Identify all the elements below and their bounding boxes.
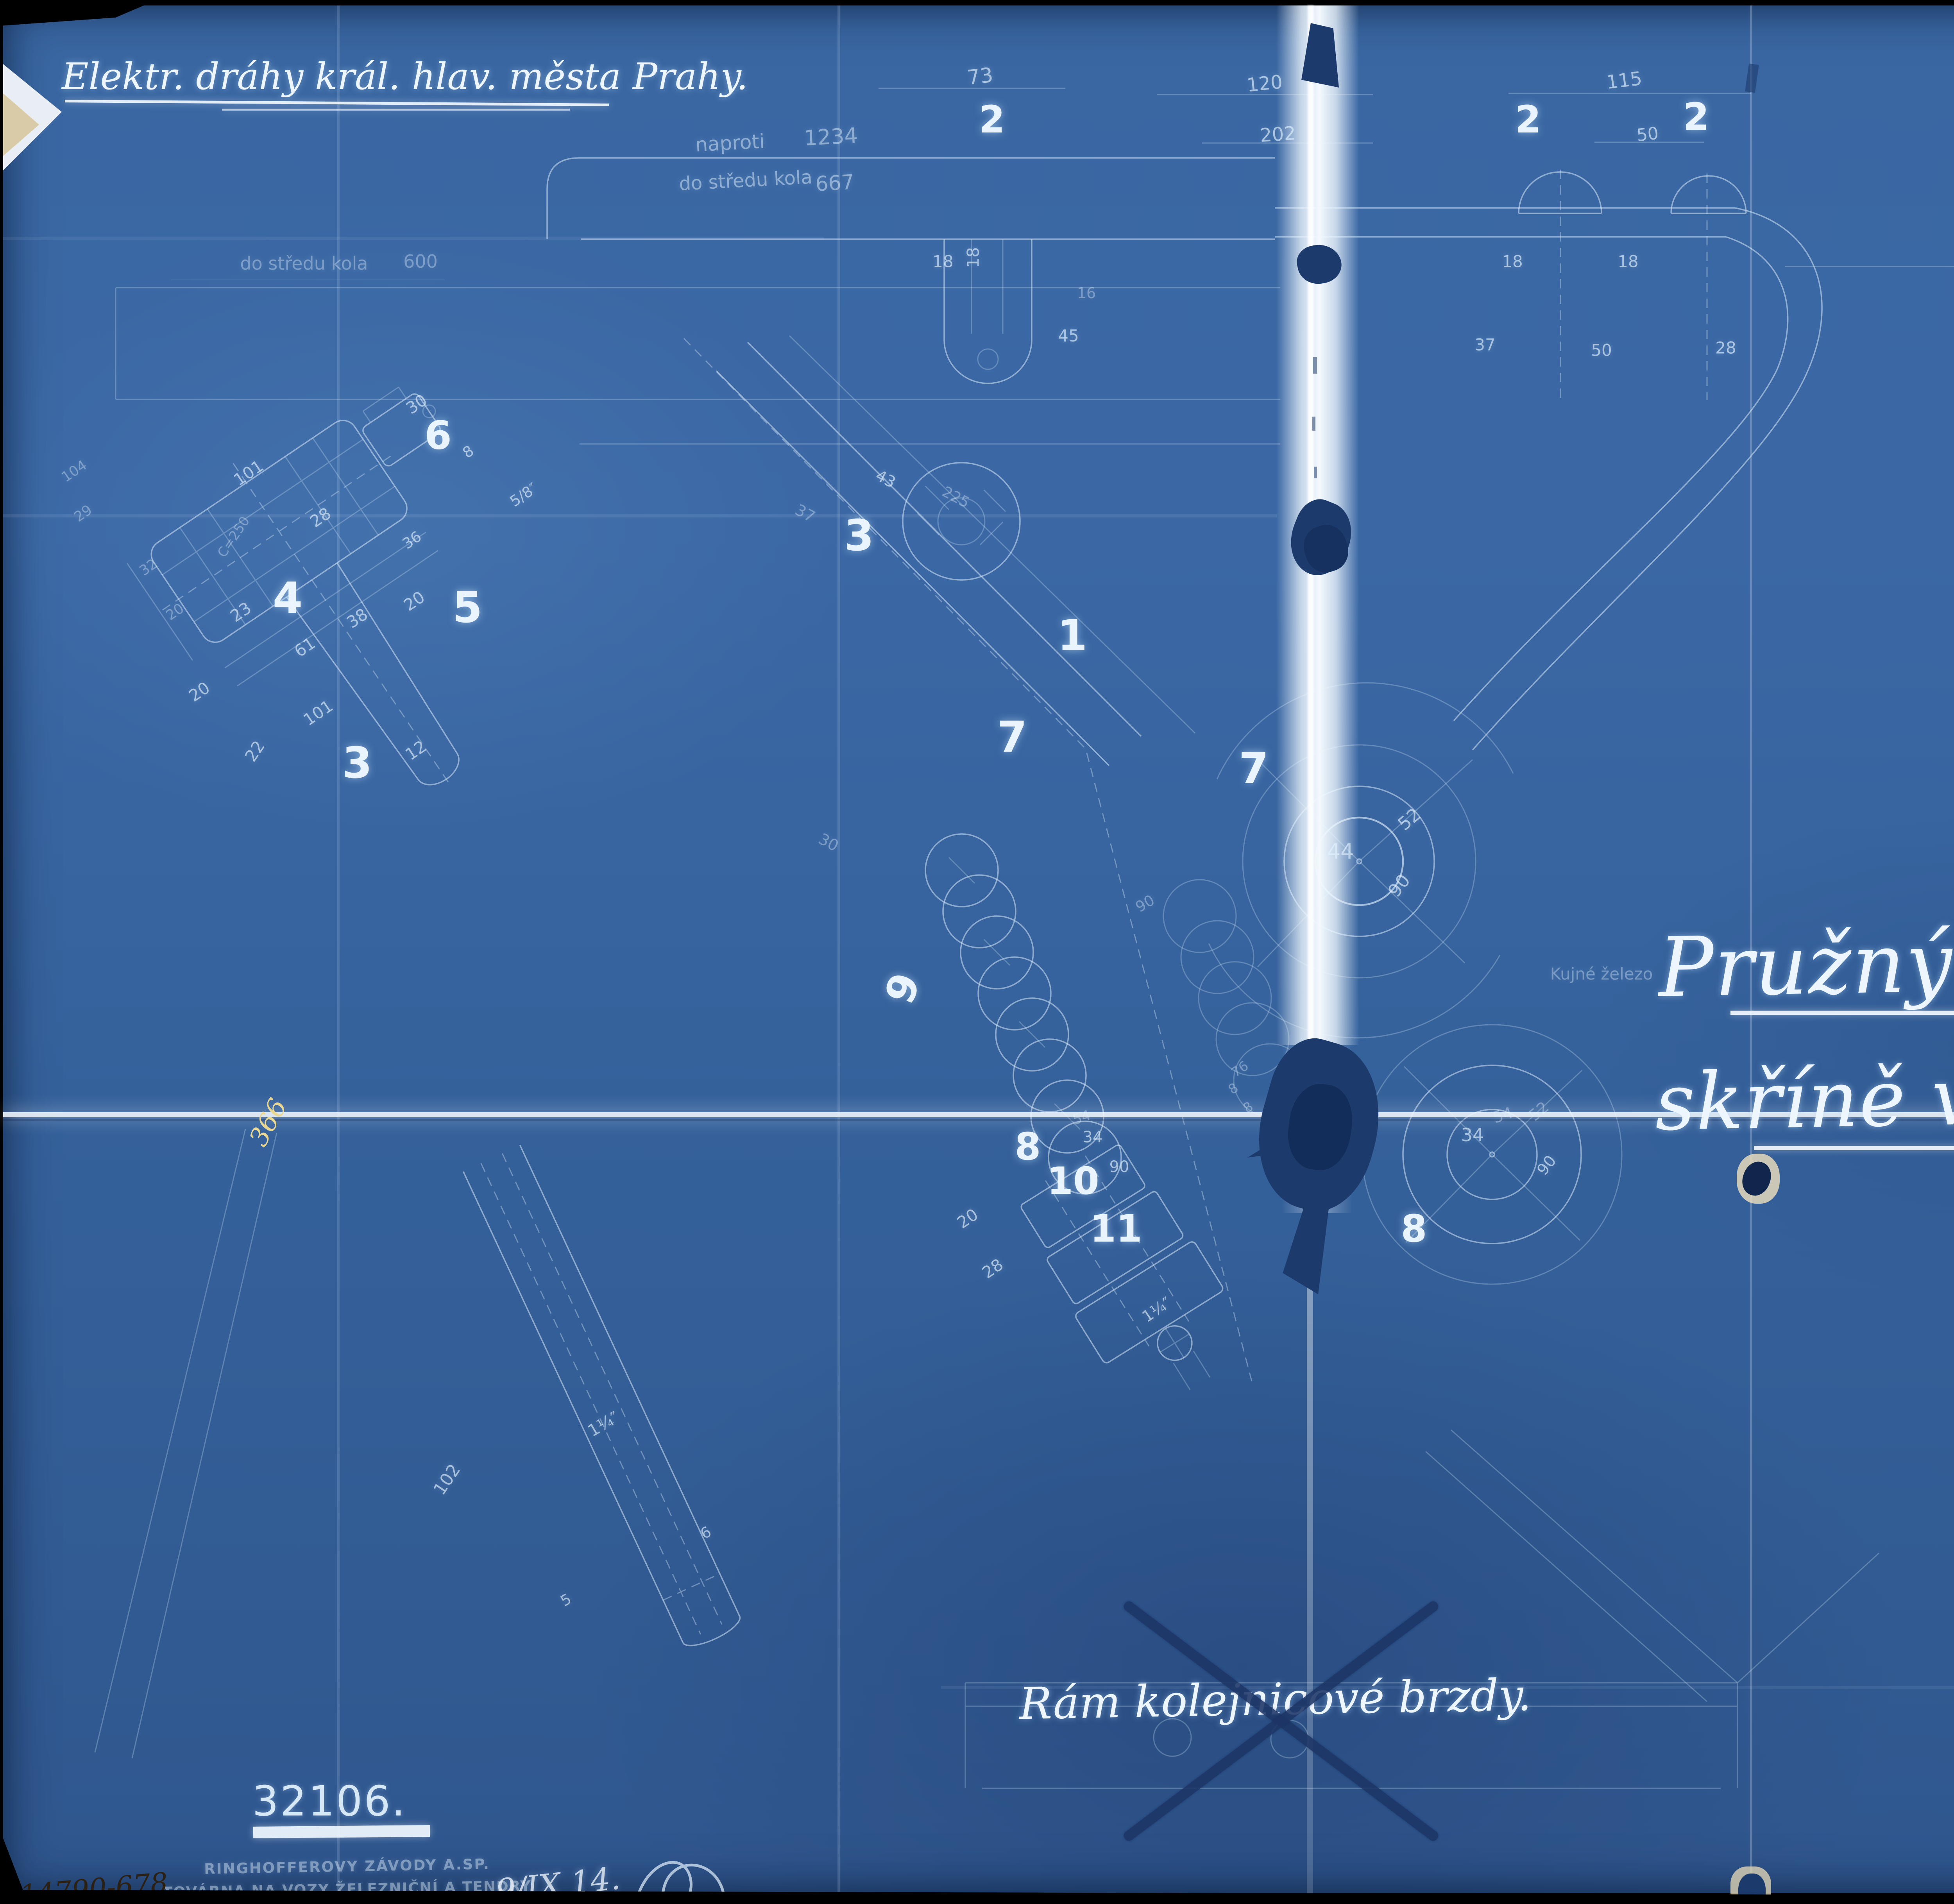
drawing-number-bottom: 32106. [252,1777,407,1825]
main-title-line2: skříně vozové. [1654,1047,1954,1149]
wheel-center-line [171,279,445,280]
part-number-label-11: 11 [1090,1207,1142,1251]
dim-note-naproti-value: 1234 [803,123,859,150]
dim-note-kola600-label: do středu kola [240,253,368,274]
part-number-label-2: 2 [1683,95,1709,139]
dimension-label-90: 90 [1109,1158,1129,1176]
part-number-label-8: 8 [1015,1125,1041,1169]
blueprint-sheet: Elektrické dráhy hlavního města Prahy. 2… [3,5,1954,1893]
dimension-label-73: 73 [966,63,995,90]
blueprint-scan: Elektrické dráhy hlavního města Prahy. 2… [0,0,1954,1904]
owner-note-underline-2 [222,109,570,111]
fold-crease-horizontal [3,514,1277,517]
main-title-underline1 [1730,1011,1954,1015]
dimension-label-50: 50 [1635,123,1659,146]
part-number-label-10: 10 [1047,1159,1099,1203]
dimension-label-18: 18 [964,247,983,268]
part-number-label-2: 2 [1515,98,1541,141]
part-number-label-7: 7 [1239,743,1269,793]
part-number-label-6: 6 [424,413,452,458]
dim-note-kola667-value: 667 [815,170,855,196]
drawing-number-underline [253,1825,430,1838]
dimension-label-18: 18 [1618,252,1638,271]
crease-highlight [1308,5,1314,1201]
dimension-label-120: 120 [1246,71,1284,96]
band-nick [1313,357,1317,374]
dimension-label-34: 34 [1083,1128,1103,1146]
owner-note: Elektr. dráhy král. hlav. města Prahy. [62,55,748,98]
dimension-label-18: 18 [1502,252,1523,271]
main-title-underline2 [1754,1146,1954,1150]
part-number-label-5: 5 [453,582,483,632]
part-number-label-7: 7 [997,712,1027,762]
fold-crease-vertical-center [1307,1201,1313,1897]
dimension-label-50: 50 [1591,341,1612,360]
part-number-label-3: 3 [844,510,874,560]
dimension-label-202: 202 [1259,122,1296,147]
band-nick [1314,467,1317,478]
dim-note-naproti-label: naproti [695,130,765,156]
band-nick [1312,417,1315,431]
fold-crease-vertical [337,5,340,1904]
fold-crease-horizontal [3,237,824,240]
fold-crease-vertical [837,5,840,1904]
part-number-label-1: 1 [1058,610,1088,660]
dimension-label-28: 28 [1715,338,1736,358]
dimension-label-44: 44 [1327,839,1354,864]
material-note: Kujné železo [1550,965,1653,984]
dimension-label-18: 18 [932,252,953,271]
dimension-label-37: 37 [1474,335,1495,354]
part-number-label-2: 2 [979,98,1005,141]
dimension-label-45: 45 [1058,326,1079,345]
dimension-label-115: 115 [1605,68,1643,94]
part-number-label-4: 4 [273,573,303,623]
dimension-label-16: 16 [1077,285,1096,302]
main-title-line1: Pružný závěs [1658,910,1954,1016]
part-number-label-8: 8 [1401,1207,1427,1251]
dimension-label-34: 34 [1461,1124,1484,1145]
part-number-label-3: 3 [342,738,372,788]
dim-note-kola600-value: 600 [403,251,438,272]
